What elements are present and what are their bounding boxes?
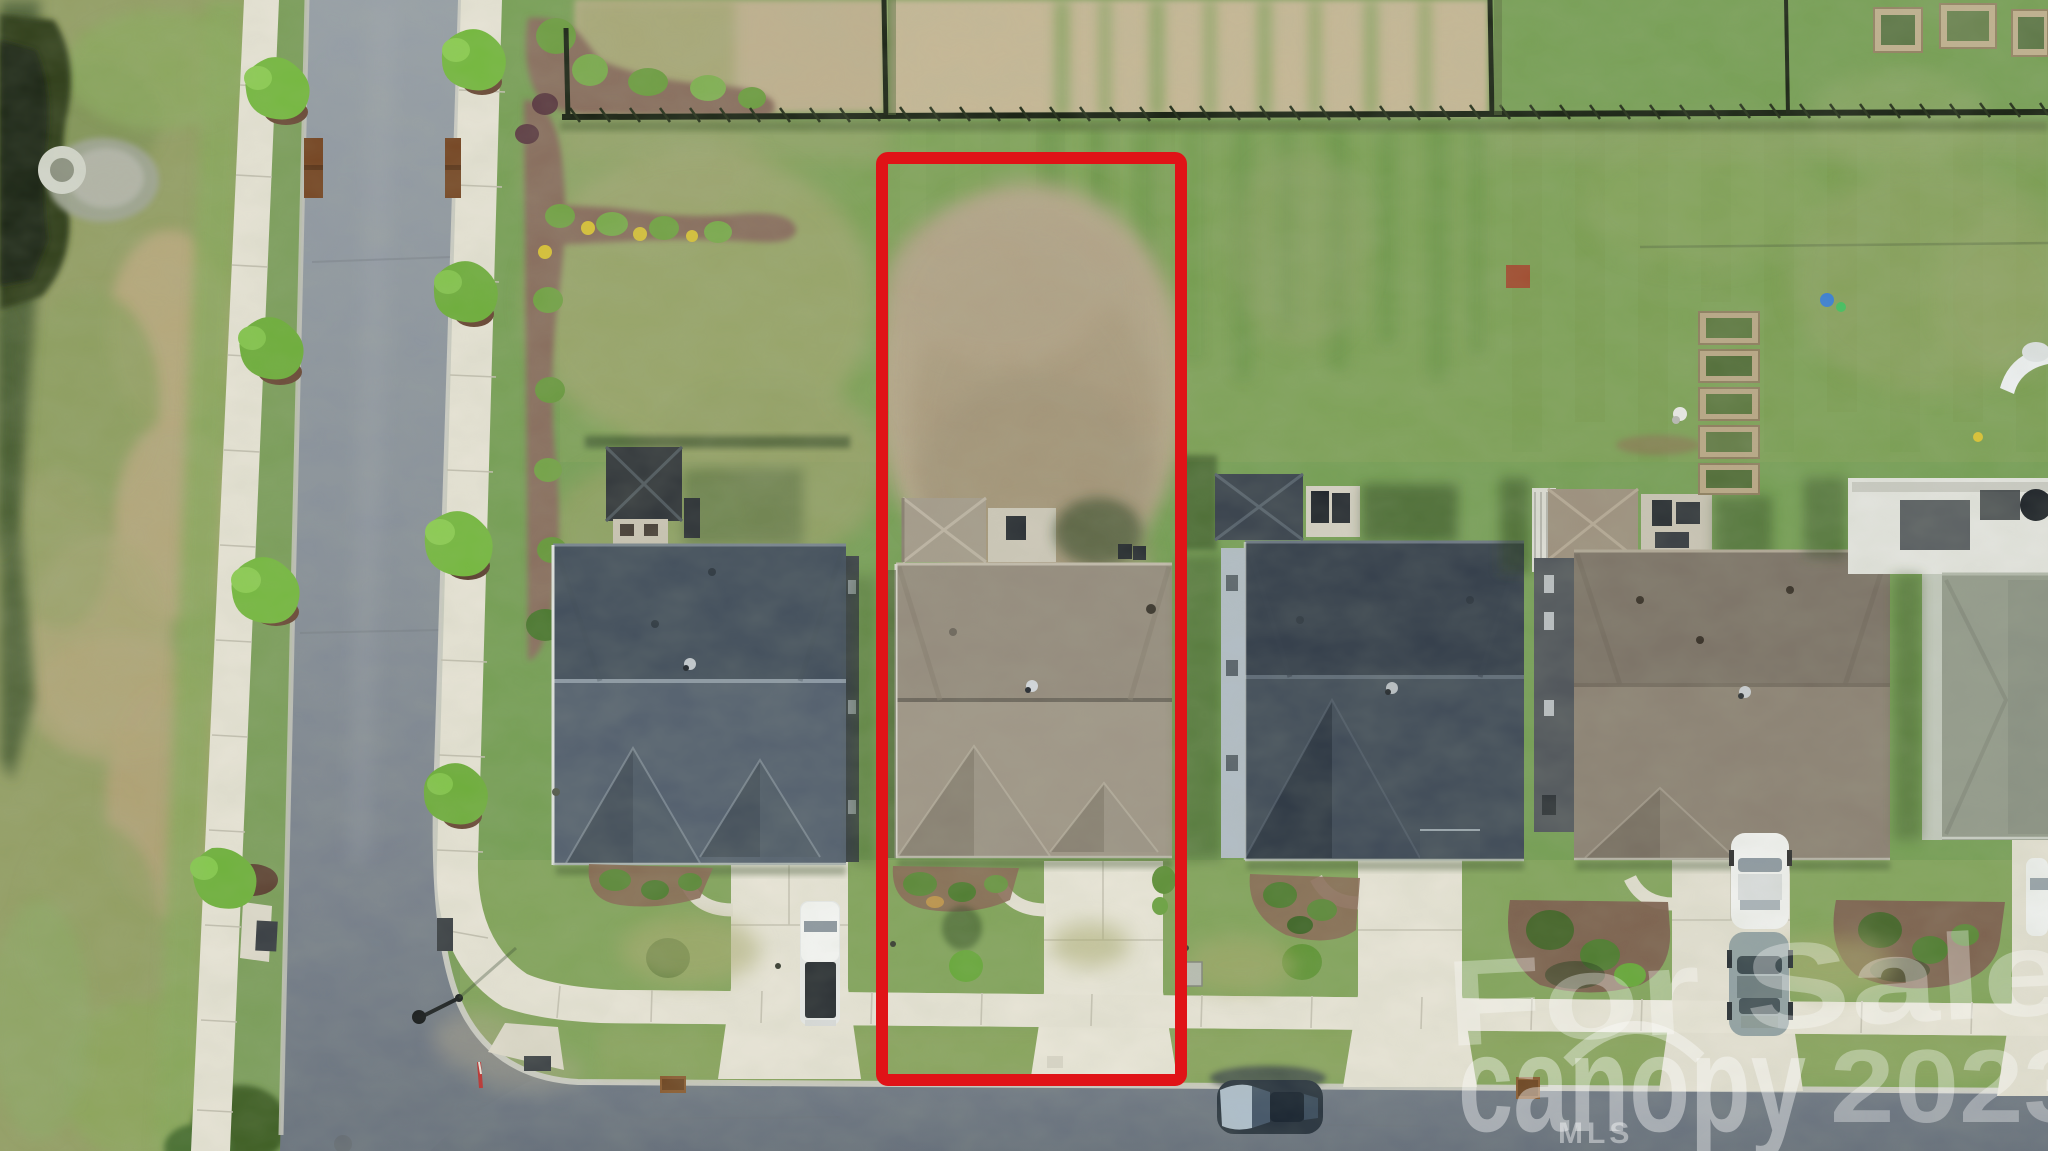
svg-text:2023: 2023 — [1830, 1029, 2048, 1145]
svg-text:MLS: MLS — [1558, 1117, 1633, 1150]
